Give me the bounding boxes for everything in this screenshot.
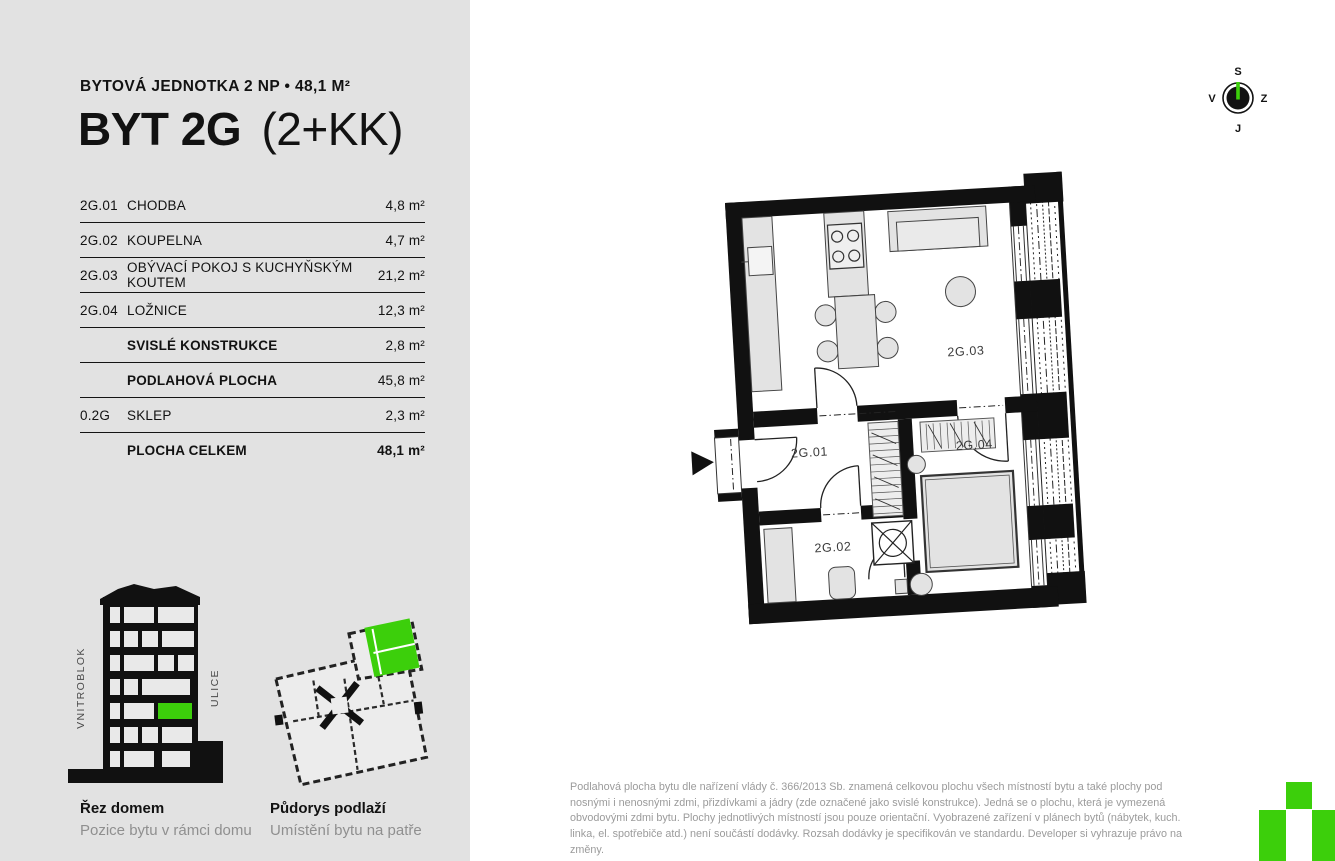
disclaimer-text: Podlahová plocha bytu dle nařízení vlády… [570,780,1186,859]
table-row: PODLAHOVÁ PLOCHA 45,8 m² [80,363,425,398]
room-name: SVISLÉ KONSTRUKCE [127,338,386,353]
unit-layout-type: (2+KK) [261,103,402,155]
section-caption-subtitle: Pozice bytu v rámci domu [80,822,252,839]
brand-logo [1259,782,1335,861]
table-row: 2G.02 KOUPELNA 4,7 m² [80,223,425,258]
washing-machine [872,521,914,565]
floor-plan: 2G.01 2G.02 2G.03 2G.04 [660,165,1090,665]
floor-overview-figure [262,618,447,790]
room-area: 2,8 m² [386,338,425,353]
bed [921,471,1018,572]
toilet [828,566,856,599]
room-area: 2,3 m² [386,408,425,423]
table-row: 2G.04 LOŽNICE 12,3 m² [80,293,425,328]
room-name: PODLAHOVÁ PLOCHA [127,373,378,388]
highlighted-unit [158,703,192,719]
sofa [888,206,988,252]
bedside-table [910,573,933,596]
room-area: 4,7 m² [386,233,425,248]
room-code: 2G.01 [80,198,127,213]
room-name: KOUPELNA [127,233,386,248]
section-left-label: VNITROBLOK [75,647,87,729]
room-area: 48,1 m² [377,443,425,458]
compass-north-needle [1236,82,1240,100]
entry [690,429,742,504]
table-row: SVISLÉ KONSTRUKCE 2,8 m² [80,328,425,363]
kitchen-island [824,211,869,297]
facade-wall-blocks [1024,172,1087,605]
entry-arrow-icon [691,450,714,475]
section-caption: Řez domem Pozice bytu v rámci domu [80,800,252,839]
room-area: 12,3 m² [378,303,425,318]
room-area: 21,2 m² [378,268,425,283]
room-code: 2G.02 [80,233,127,248]
bedside-table [907,455,926,474]
room-label-bath: 2G.02 [814,539,852,555]
unit-kicker: BYTOVÁ JEDNOTKA 2 NP • 48,1 M² [80,78,350,96]
room-label-hall: 2G.01 [791,444,829,460]
page-title: BYT 2G (2+KK) [78,102,403,156]
room-area: 4,8 m² [386,198,425,213]
room-area: 45,8 m² [378,373,425,388]
compass-label-north: S [1234,66,1241,78]
room-code: 0.2G [80,408,127,423]
section-caption-title: Řez domem [80,800,252,817]
table-row: 2G.03 OBÝVACÍ POKOJ S KUCHYŇSKÝM KOUTEM … [80,258,425,293]
floor-overview-subtitle: Umístění bytu na patře [270,822,422,839]
room-code: 2G.03 [80,268,127,283]
bath-sink [895,579,908,594]
compass-label-south: J [1235,123,1241,135]
room-name: SKLEP [127,408,386,423]
section-right-label: ULICE [209,669,221,707]
floor-overview-caption: Půdorys podlaží Umístění bytu na patře [270,800,422,839]
unit-name: BYT 2G [78,103,241,155]
bathtub [764,528,796,603]
compass-icon: S V Z J [1200,58,1276,144]
room-code: 2G.04 [80,303,127,318]
hall-wardrobe [868,421,903,517]
room-label-living: 2G.03 [947,343,985,359]
apartment-sheet: BYTOVÁ JEDNOTKA 2 NP • 48,1 M² BYT 2G (2… [0,0,1335,861]
room-name: LOŽNICE [127,303,378,318]
table-row: PLOCHA CELKEM 48,1 m² [80,433,425,467]
room-name: PLOCHA CELKEM [127,443,377,458]
compass-label-east: Z [1261,93,1268,105]
floor-overview-title: Půdorys podlaží [270,800,422,817]
stove [827,223,863,269]
room-name: CHODBA [127,198,386,213]
building-section-figure: VNITROBLOK ULICE [58,583,238,788]
room-area-table: 2G.01 CHODBA 4,8 m² 2G.02 KOUPELNA 4,7 m… [80,188,425,467]
kitchen-sink [748,246,774,275]
table-row: 0.2G SKLEP 2,3 m² [80,398,425,433]
room-name: OBÝVACÍ POKOJ S KUCHYŇSKÝM KOUTEM [127,260,378,290]
dining-table [814,293,899,370]
compass-label-west: V [1208,93,1216,105]
coffee-table [945,276,977,308]
table-row: 2G.01 CHODBA 4,8 m² [80,188,425,223]
room-label-bedroom: 2G.04 [955,437,993,453]
